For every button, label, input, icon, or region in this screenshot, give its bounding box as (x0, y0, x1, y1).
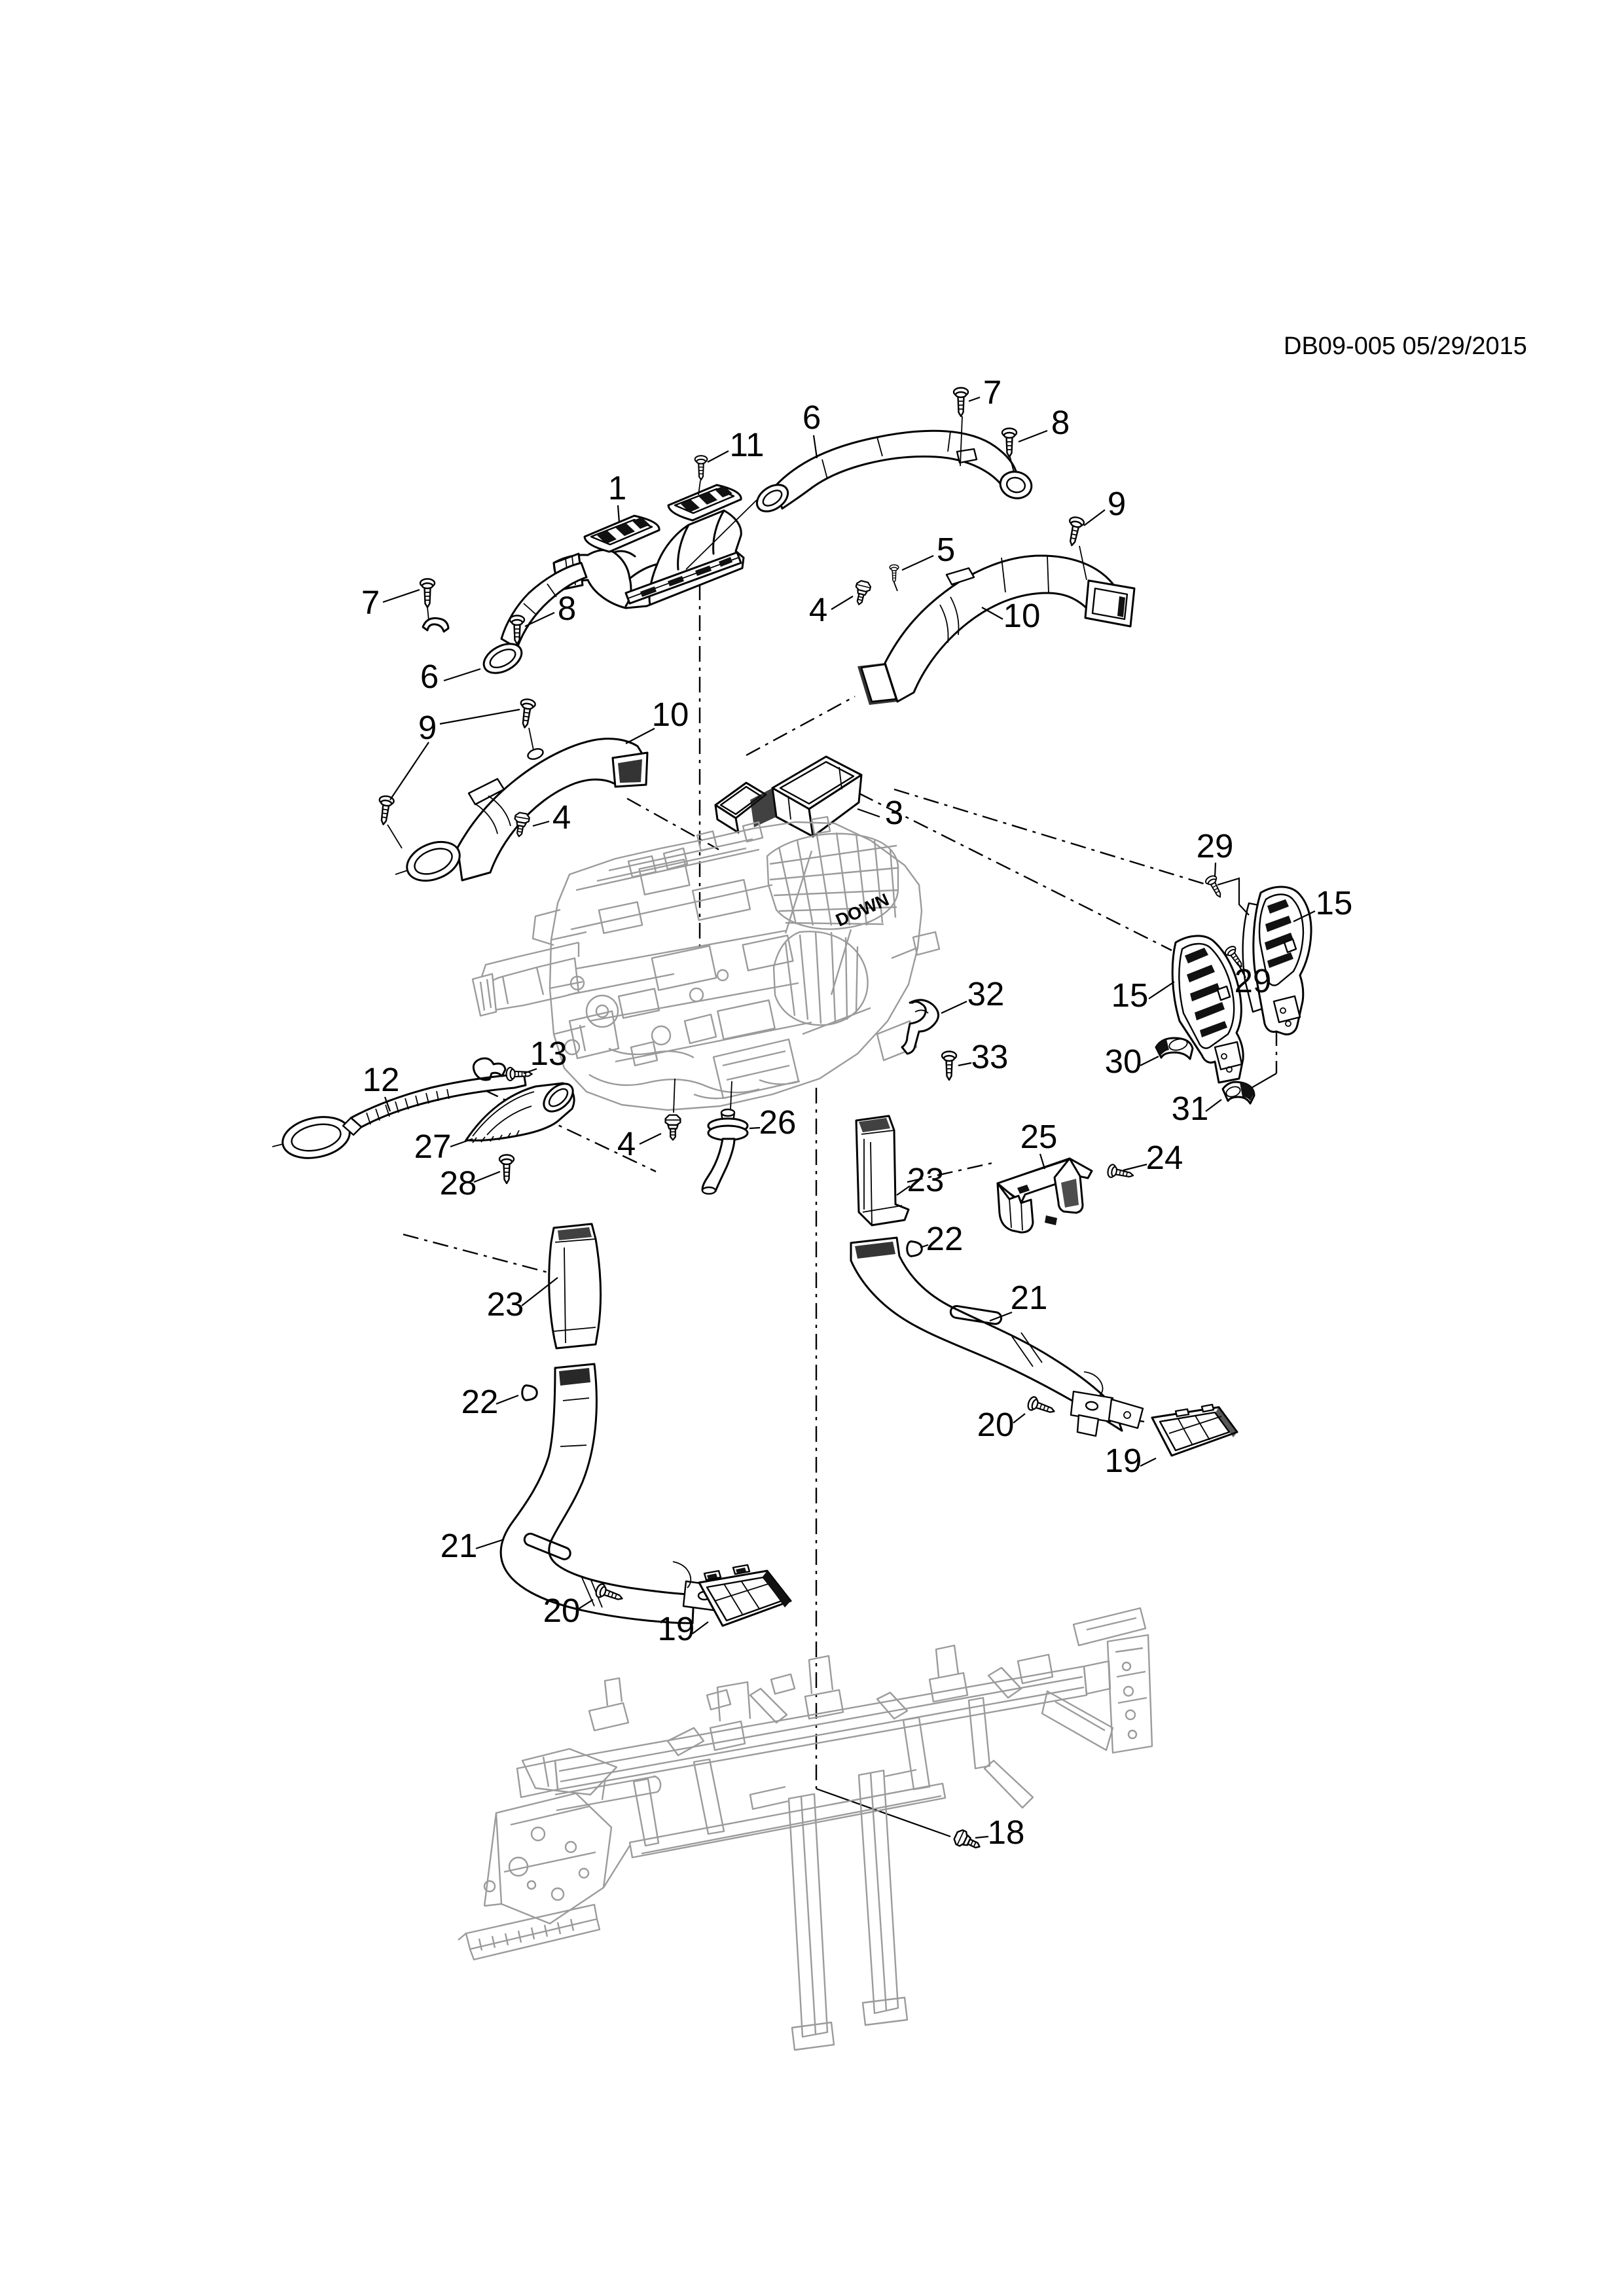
svg-text:8: 8 (1051, 404, 1070, 441)
svg-text:10: 10 (652, 696, 689, 733)
svg-text:8: 8 (558, 590, 576, 627)
svg-text:19: 19 (1105, 1442, 1142, 1479)
svg-text:22: 22 (461, 1383, 499, 1420)
svg-text:1: 1 (608, 469, 626, 507)
svg-text:4: 4 (617, 1125, 636, 1162)
svg-text:18: 18 (988, 1814, 1025, 1851)
svg-text:19: 19 (658, 1610, 695, 1647)
svg-text:23: 23 (487, 1285, 524, 1323)
svg-text:24: 24 (1146, 1139, 1183, 1176)
svg-text:3: 3 (885, 794, 903, 831)
svg-text:6: 6 (803, 399, 821, 436)
svg-text:27: 27 (414, 1128, 452, 1165)
svg-text:12: 12 (363, 1061, 400, 1098)
svg-text:22: 22 (926, 1220, 964, 1257)
svg-text:26: 26 (759, 1103, 797, 1141)
svg-text:25: 25 (1020, 1118, 1058, 1155)
svg-text:6: 6 (420, 658, 439, 695)
svg-text:32: 32 (967, 975, 1005, 1013)
svg-text:21: 21 (441, 1527, 478, 1564)
svg-text:7: 7 (983, 374, 1001, 411)
svg-text:5: 5 (937, 531, 955, 568)
svg-text:33: 33 (971, 1038, 1009, 1075)
svg-text:15: 15 (1111, 977, 1149, 1014)
svg-text:15: 15 (1316, 884, 1353, 922)
svg-text:28: 28 (440, 1164, 477, 1202)
svg-text:DB09-005 05/29/2015: DB09-005 05/29/2015 (1284, 332, 1527, 360)
svg-text:29: 29 (1197, 827, 1234, 865)
svg-text:21: 21 (1011, 1279, 1048, 1316)
svg-text:11: 11 (730, 426, 765, 463)
svg-text:7: 7 (361, 584, 380, 621)
svg-text:30: 30 (1105, 1043, 1142, 1080)
svg-text:31: 31 (1172, 1090, 1209, 1127)
svg-text:20: 20 (543, 1592, 581, 1629)
svg-text:23: 23 (907, 1161, 945, 1198)
svg-text:10: 10 (1003, 597, 1041, 634)
svg-text:13: 13 (530, 1035, 568, 1072)
svg-text:20: 20 (977, 1406, 1015, 1443)
svg-text:9: 9 (1108, 485, 1126, 522)
svg-text:9: 9 (418, 709, 437, 746)
svg-text:4: 4 (809, 591, 827, 628)
svg-text:4: 4 (552, 798, 571, 836)
